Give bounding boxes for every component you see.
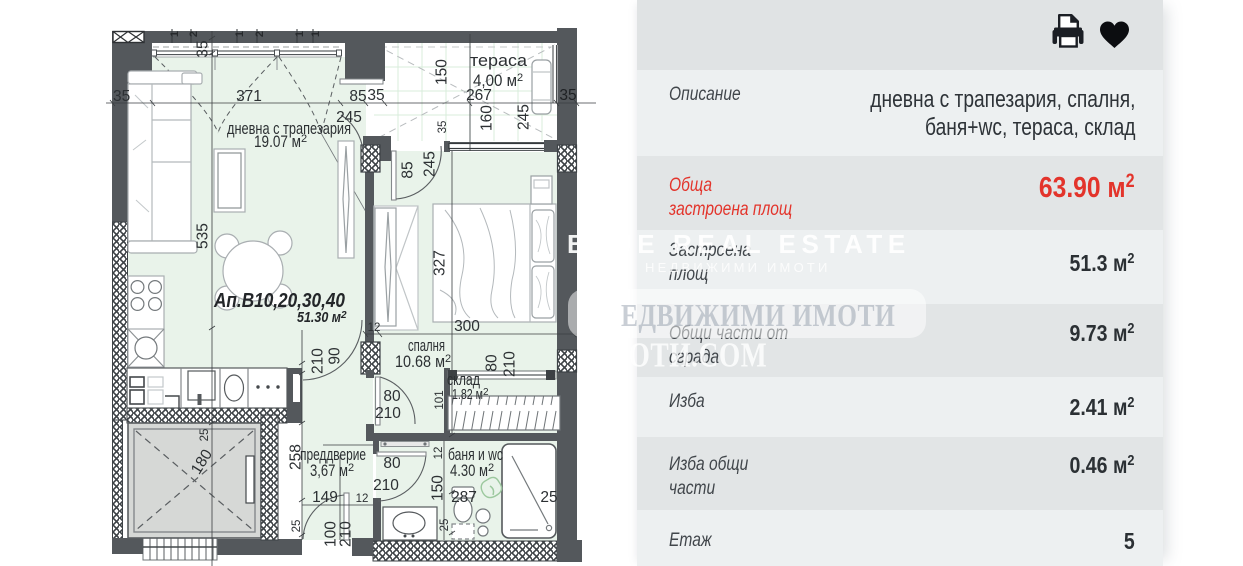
- svg-text:150: 150: [430, 475, 447, 501]
- svg-text:535: 535: [195, 223, 212, 249]
- svg-text:90: 90: [327, 347, 344, 365]
- svg-text:101: 101: [434, 390, 446, 409]
- svg-text:80: 80: [484, 354, 501, 372]
- svg-text:258: 258: [288, 444, 305, 470]
- svg-text:4.30 м2: 4.30 м2: [450, 461, 494, 480]
- svg-text:85: 85: [400, 161, 417, 178]
- svg-text:25: 25: [439, 519, 451, 532]
- svg-text:210: 210: [502, 351, 519, 377]
- svg-text:2: 2: [188, 31, 200, 37]
- svg-text:51.30 м2: 51.30 м2: [297, 310, 347, 326]
- svg-text:тераса: тераса: [470, 51, 528, 70]
- svg-text:25: 25: [199, 429, 211, 442]
- svg-text:160: 160: [479, 105, 496, 131]
- svg-text:245: 245: [422, 151, 439, 177]
- svg-text:210: 210: [373, 477, 399, 494]
- svg-text:10.68 м2: 10.68 м2: [395, 352, 451, 371]
- svg-text:210: 210: [310, 348, 327, 374]
- svg-text:25: 25: [291, 520, 303, 533]
- svg-text:12: 12: [368, 322, 381, 334]
- svg-text:1: 1: [169, 31, 181, 37]
- svg-text:245: 245: [336, 109, 362, 126]
- svg-text:80: 80: [383, 388, 401, 405]
- svg-text:35: 35: [367, 87, 384, 104]
- svg-text:287: 287: [451, 489, 477, 506]
- svg-text:3,67 м2: 3,67 м2: [310, 461, 354, 480]
- svg-text:85: 85: [349, 88, 366, 105]
- svg-text:2: 2: [254, 31, 266, 37]
- svg-text:25: 25: [540, 489, 557, 506]
- svg-text:35: 35: [195, 40, 212, 57]
- svg-text:80: 80: [383, 455, 401, 472]
- svg-text:267: 267: [466, 87, 492, 104]
- svg-text:19.07 м2: 19.07 м2: [254, 132, 307, 151]
- svg-text:1: 1: [294, 31, 306, 37]
- svg-text:210: 210: [338, 521, 355, 547]
- svg-text:12: 12: [433, 447, 445, 460]
- svg-text:371: 371: [236, 88, 262, 105]
- svg-text:210: 210: [375, 405, 401, 422]
- svg-text:150: 150: [434, 59, 451, 85]
- svg-text:149: 149: [312, 489, 338, 506]
- svg-text:1: 1: [310, 31, 322, 37]
- svg-text:12: 12: [356, 493, 369, 505]
- svg-text:Ап.В10,20,30,40: Ап.В10,20,30,40: [213, 290, 345, 312]
- svg-text:1: 1: [234, 31, 246, 37]
- svg-text:35: 35: [437, 121, 449, 134]
- svg-text:35: 35: [113, 88, 130, 105]
- svg-text:35: 35: [559, 87, 576, 104]
- svg-text:300: 300: [454, 318, 480, 335]
- svg-text:245: 245: [516, 104, 533, 130]
- svg-text:327: 327: [432, 250, 449, 276]
